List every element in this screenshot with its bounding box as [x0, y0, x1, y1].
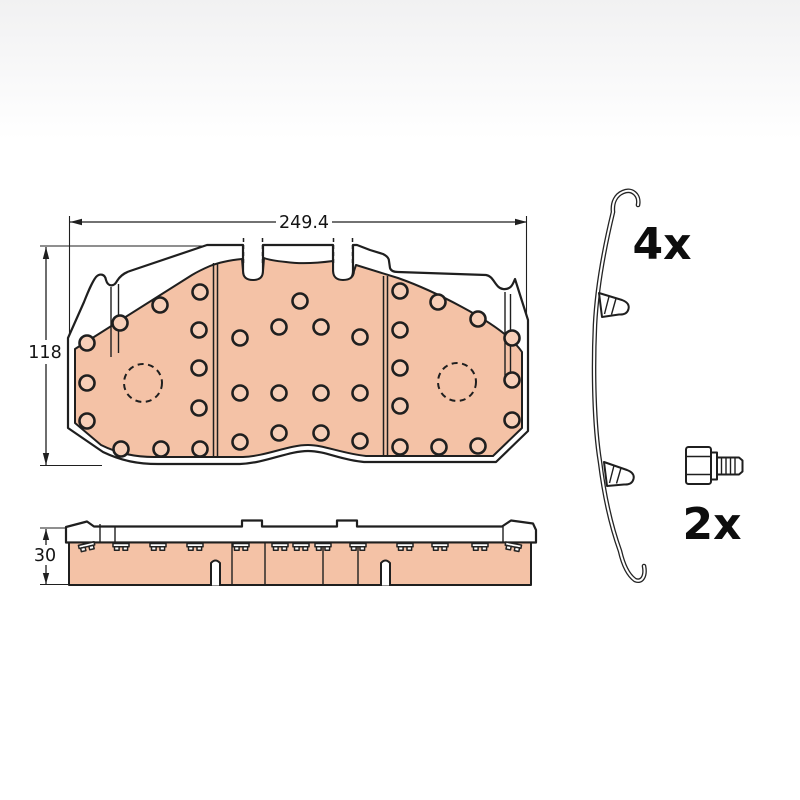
rivet-hole	[272, 320, 287, 335]
spring-clip-quantity-label: 4x	[633, 219, 692, 270]
side-friction-strip	[69, 543, 531, 586]
rivet-hole	[192, 401, 207, 416]
rivet-hole	[272, 386, 287, 401]
side-groove-slot	[211, 561, 220, 586]
rivet-hole	[113, 316, 128, 331]
rivet-hole	[431, 295, 446, 310]
rivet-hole	[393, 323, 408, 338]
rivet-hole	[193, 442, 208, 457]
spring-tab	[604, 462, 634, 486]
product-diagram-page: { "figure": { "type": "technical-diagram…	[0, 0, 800, 800]
rivet-hole	[393, 361, 408, 376]
background-band	[0, 0, 800, 140]
rivet-hole	[353, 330, 368, 345]
bolt-head	[686, 447, 711, 484]
rivet-hole	[154, 442, 169, 457]
rivet-hole	[153, 298, 168, 313]
side-groove-slot	[381, 561, 390, 586]
height-dimension-label: 118	[28, 343, 61, 363]
brake-pad-front-view: 249.4 118	[28, 213, 528, 466]
rivet-hole	[505, 331, 520, 346]
side-backing-plate	[66, 521, 536, 543]
rivet-hole	[353, 434, 368, 449]
rivet-hole	[192, 361, 207, 376]
rivet-hole	[272, 426, 287, 441]
rivet-hole	[314, 386, 329, 401]
rivet-hole	[233, 331, 248, 346]
bolt-quantity-label: 2x	[683, 499, 742, 550]
rivet-hole	[314, 320, 329, 335]
brake-pad-side-view: 30	[34, 521, 536, 586]
spring-tab	[599, 293, 629, 317]
thickness-dimension: 30	[34, 528, 69, 585]
rivet-hole	[471, 439, 486, 454]
diagram-canvas: 249.4 118	[0, 0, 800, 800]
rivet-hole	[505, 413, 520, 428]
rivet-hole	[193, 285, 208, 300]
rivet-hole	[393, 399, 408, 414]
rivet-hole	[432, 440, 447, 455]
rivet-hole	[471, 312, 486, 327]
rivet-hole	[314, 426, 329, 441]
width-dimension-label: 249.4	[279, 213, 329, 233]
rivet-hole	[192, 323, 207, 338]
bolt-drawing: 2x	[683, 447, 743, 550]
rivet-hole	[353, 386, 368, 401]
rivet-hole	[393, 440, 408, 455]
spring-clip-drawing: 4x	[594, 191, 691, 581]
rivet-hole	[233, 386, 248, 401]
rivet-hole	[505, 373, 520, 388]
rivet-hole	[80, 336, 95, 351]
thickness-dimension-label: 30	[34, 546, 56, 566]
rivet-hole	[114, 442, 129, 457]
rivet-hole	[233, 435, 248, 450]
rivet-hole	[80, 414, 95, 429]
rivet-hole	[393, 284, 408, 299]
rivet-hole	[80, 376, 95, 391]
rivet-hole	[293, 294, 308, 309]
